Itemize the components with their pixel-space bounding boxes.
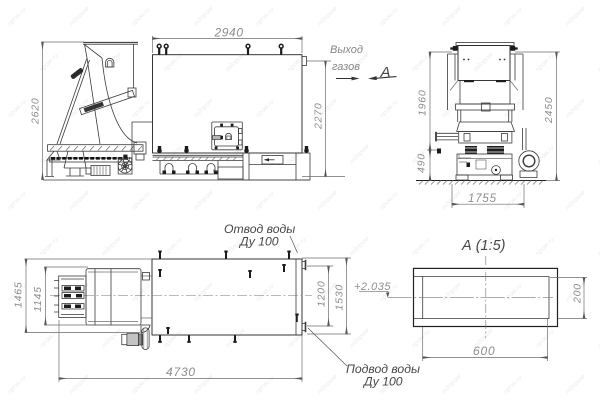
- svg-text:2450: 2450: [543, 96, 555, 124]
- svg-text:1755: 1755: [468, 193, 497, 205]
- svg-text:1960: 1960: [417, 89, 429, 116]
- svg-text:600: 600: [473, 344, 495, 358]
- svg-text:газов: газов: [332, 61, 360, 73]
- svg-text:4730: 4730: [166, 365, 196, 379]
- svg-text:А (1:5): А (1:5): [461, 238, 506, 254]
- svg-text:490: 490: [416, 153, 428, 173]
- svg-text:2940: 2940: [214, 26, 244, 40]
- svg-text:Выход: Выход: [330, 44, 363, 56]
- svg-text:А: А: [380, 64, 391, 81]
- svg-text:1145: 1145: [32, 286, 44, 312]
- svg-text:200: 200: [572, 283, 584, 304]
- svg-text:2270: 2270: [313, 102, 325, 130]
- svg-text:Ду 100: Ду 100: [362, 375, 403, 389]
- svg-text:Ду 100: Ду 100: [238, 235, 279, 249]
- svg-text:1200: 1200: [316, 280, 328, 307]
- svg-text:1530: 1530: [334, 284, 346, 311]
- svg-text:1465: 1465: [13, 281, 25, 308]
- svg-text:2620: 2620: [30, 97, 42, 125]
